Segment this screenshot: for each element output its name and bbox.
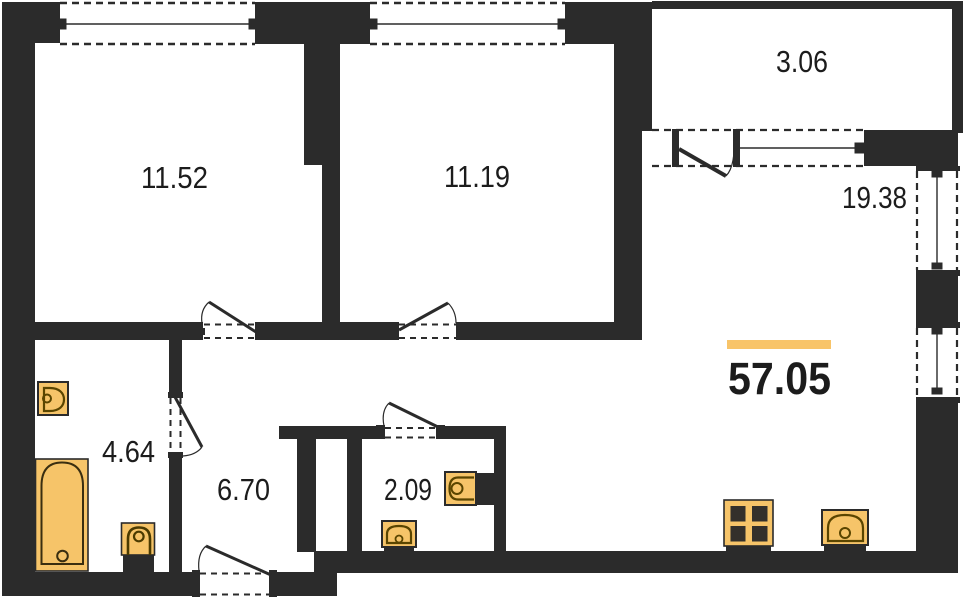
svg-text:3.06: 3.06 [776,44,828,79]
svg-text:2.09: 2.09 [384,472,432,507]
svg-text:19.38: 19.38 [842,180,907,215]
svg-text:11.19: 11.19 [444,159,510,194]
svg-text:6.70: 6.70 [217,472,270,507]
svg-text:57.05: 57.05 [728,353,831,404]
svg-text:4.64: 4.64 [102,434,155,469]
svg-text:11.52: 11.52 [141,160,208,195]
